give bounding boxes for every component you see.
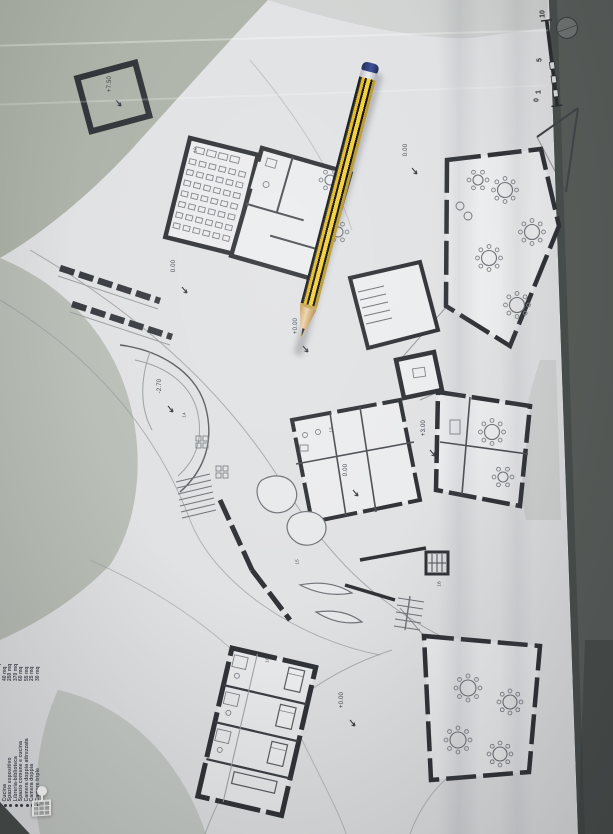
legend-label: Camere triple bbox=[36, 681, 42, 801]
room-number: 13 bbox=[330, 427, 335, 432]
floor-plan-drawing bbox=[0, 0, 613, 834]
room-number: 14 bbox=[183, 412, 188, 417]
room-number: 15 bbox=[296, 559, 301, 564]
level-label-terrace: 0.00 bbox=[171, 260, 177, 272]
pencil-lead bbox=[300, 328, 305, 337]
scale-tick-1: 1 bbox=[536, 90, 543, 94]
level-label-hall-lower: +0.00 bbox=[339, 692, 345, 708]
legend-dot bbox=[20, 804, 23, 807]
pin-building-grid bbox=[32, 799, 51, 816]
dining-wing-bottom bbox=[424, 636, 540, 780]
legend-dot bbox=[4, 804, 7, 807]
scale-tick-5: 5 bbox=[537, 58, 544, 62]
mid-right-wing bbox=[436, 392, 530, 506]
legend-dot bbox=[9, 804, 12, 807]
level-label-court: -2.70 bbox=[157, 379, 163, 394]
legend: Servizi245 mqCucina40 mqSpazio espositiv… bbox=[0, 647, 41, 807]
level-label-patio: +7.50 bbox=[107, 76, 113, 92]
room-number: 16 bbox=[266, 657, 271, 662]
legend-dot bbox=[0, 804, 1, 807]
room-number: 18 bbox=[438, 581, 443, 586]
building-pin-icon[interactable] bbox=[28, 786, 56, 820]
room-number: 10 bbox=[194, 147, 199, 152]
level-label-path-upper: 0.00 bbox=[403, 144, 409, 156]
legend-row: Camere triple30 mq bbox=[36, 647, 42, 807]
legend-dot bbox=[15, 804, 18, 807]
scale-tick-0: 0 bbox=[534, 98, 541, 102]
level-label-hall-central: 0.00 bbox=[343, 464, 349, 476]
legend-area: 30 mq bbox=[36, 647, 42, 681]
scale-tick-10: 10 bbox=[540, 10, 547, 18]
photo-of-floor-plan: +7.50 0.00 0.00 +0.00 -2.70 +3.00 0.00 +… bbox=[0, 0, 613, 834]
level-label-wing-right: +3.00 bbox=[421, 420, 427, 436]
